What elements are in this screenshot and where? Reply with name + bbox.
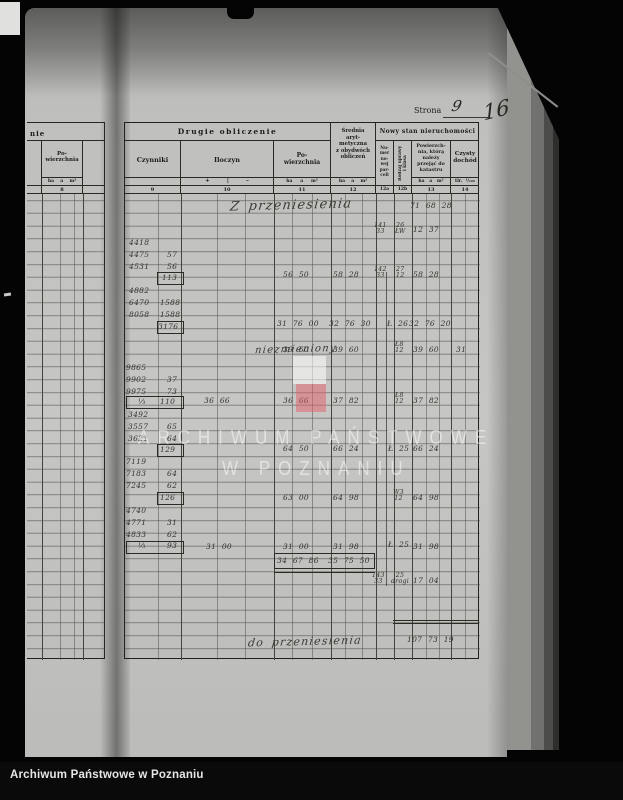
handwritten-entry: 31 00 (206, 543, 232, 551)
handwritten-entry: 143 33 (372, 573, 385, 585)
handwritten-entry: 58 28 (333, 271, 359, 279)
handwritten-entry: 31 76 00 (277, 320, 319, 328)
handwritten-entry: 4882 (129, 287, 149, 295)
handwritten-entry: 32 76 30 (329, 320, 371, 328)
handwritten-entry: 31 98 (413, 543, 439, 551)
handwritten-entry: Ł 26 (387, 320, 408, 328)
handwritten-entry: 25 drogi (391, 573, 409, 585)
handwritten-entry: 4475 (129, 251, 149, 259)
handwritten-entry: Ł8 12 (395, 342, 404, 354)
handwritten-entry: Ł 25 (388, 541, 409, 549)
handwritten-entry: 39 60 (333, 346, 359, 354)
scanned-archive-photo: Strona 9 16 nie Po- wierzchnia ha a m² 8… (0, 0, 623, 800)
watermark-line2: W POZNANIU (222, 457, 411, 481)
handwritten-entry: 39 60 (283, 346, 309, 354)
handwritten-entry: 17 04 (413, 577, 439, 585)
handwritten-entry: 93 (167, 542, 177, 550)
handwritten-entry: 4418 (129, 239, 149, 247)
handwritten-entry: 110 (160, 398, 175, 406)
handwritten-entry: 9975 (126, 388, 146, 396)
handwritten-entry: 4833 (126, 531, 146, 539)
handwritten-entry: 6470 (129, 299, 149, 307)
archive-name-label: Archiwum Państwowe w Poznaniu (10, 769, 204, 781)
handwritten-entry: 3176 (158, 323, 178, 331)
handwritten-entry: Ł8 12 (395, 393, 404, 405)
handwritten-entry: ⅓ (138, 398, 146, 406)
handwritten-entry: 26 ŁW (395, 223, 406, 235)
handwritten-entry: 4771 (126, 519, 146, 527)
handwritten-entry: 73 (167, 388, 177, 396)
handwritten-entry: W3 12 (393, 490, 404, 502)
watermark-logo-white-square (293, 356, 326, 384)
handwritten-entry: 141 33 (374, 223, 387, 235)
handwritten-entry: 64 (167, 470, 177, 478)
handwritten-entry: 7183 (126, 470, 146, 478)
handwritten-entry: 31 (167, 519, 177, 527)
handwritten-entry: 31 (456, 346, 466, 354)
handwritten-entry: 64 98 (333, 494, 359, 502)
handwritten-entry: 57 (167, 251, 177, 259)
handwritten-entry: Z przeniesienia (229, 197, 353, 213)
handwritten-entry: 31 98 (333, 543, 359, 551)
handwritten-entry: 126 (160, 494, 175, 502)
handwritten-entry: 7245 (126, 482, 146, 490)
handwritten-entry: 37 82 (413, 397, 439, 405)
handwritten-entry: do przeniesienia (247, 634, 362, 648)
handwritten-entry: 9865 (126, 364, 146, 372)
handwritten-entry: 64 98 (413, 494, 439, 502)
handwritten-entry: 58 28 (413, 271, 439, 279)
handwritten-entry: 142 33 (374, 267, 387, 279)
handwritten-entry: 56 50 (283, 271, 309, 279)
handwritten-entry: 63 00 (283, 494, 309, 502)
handwritten-entry: 9902 (126, 376, 146, 384)
handwritten-entry: 107 73 19 (407, 636, 454, 644)
handwritten-entry: 37 (167, 376, 177, 384)
handwritten-entry: 113 (162, 274, 177, 282)
watermark-logo-pink-square (296, 384, 326, 412)
handwritten-entry: 1588 (160, 299, 180, 307)
handwritten-entry: 4531 (129, 263, 149, 271)
handwritten-entry: 27 12 (396, 267, 404, 279)
handwritten-entry: 12 37 (413, 226, 439, 234)
handwritten-entry: 8058 (129, 311, 149, 319)
handwritten-entry: 3492 (128, 411, 148, 419)
handwritten-entry: 56 (167, 263, 177, 271)
handwritten-entry: 31 00 (283, 543, 309, 551)
handwritten-entry: 4740 (126, 507, 146, 515)
handwritten-entry: 32 76 20 (409, 320, 451, 328)
handwritten-entry: ⅓ (138, 542, 146, 550)
handwritten-entry: 39 60 (413, 346, 439, 354)
handwritten-entry: 62 (167, 531, 177, 539)
handwritten-entry: 35 75 50 (328, 557, 370, 565)
handwritten-entry: 7119 (126, 458, 146, 466)
watermark-line1: ARCHIWUM PAŃSTWOWE (138, 426, 494, 450)
footer-bar: Archiwum Państwowe w Poznaniu (0, 762, 623, 800)
handwritten-entry: 1588 (160, 311, 180, 319)
handwritten-entry: 36 66 (204, 397, 230, 405)
handwritten-entry: 37 82 (333, 397, 359, 405)
handwritten-entry: 62 (167, 482, 177, 490)
handwritten-entry: 71 68 28 (410, 202, 452, 210)
handwritten-entry: 34 67 86 (277, 557, 319, 565)
